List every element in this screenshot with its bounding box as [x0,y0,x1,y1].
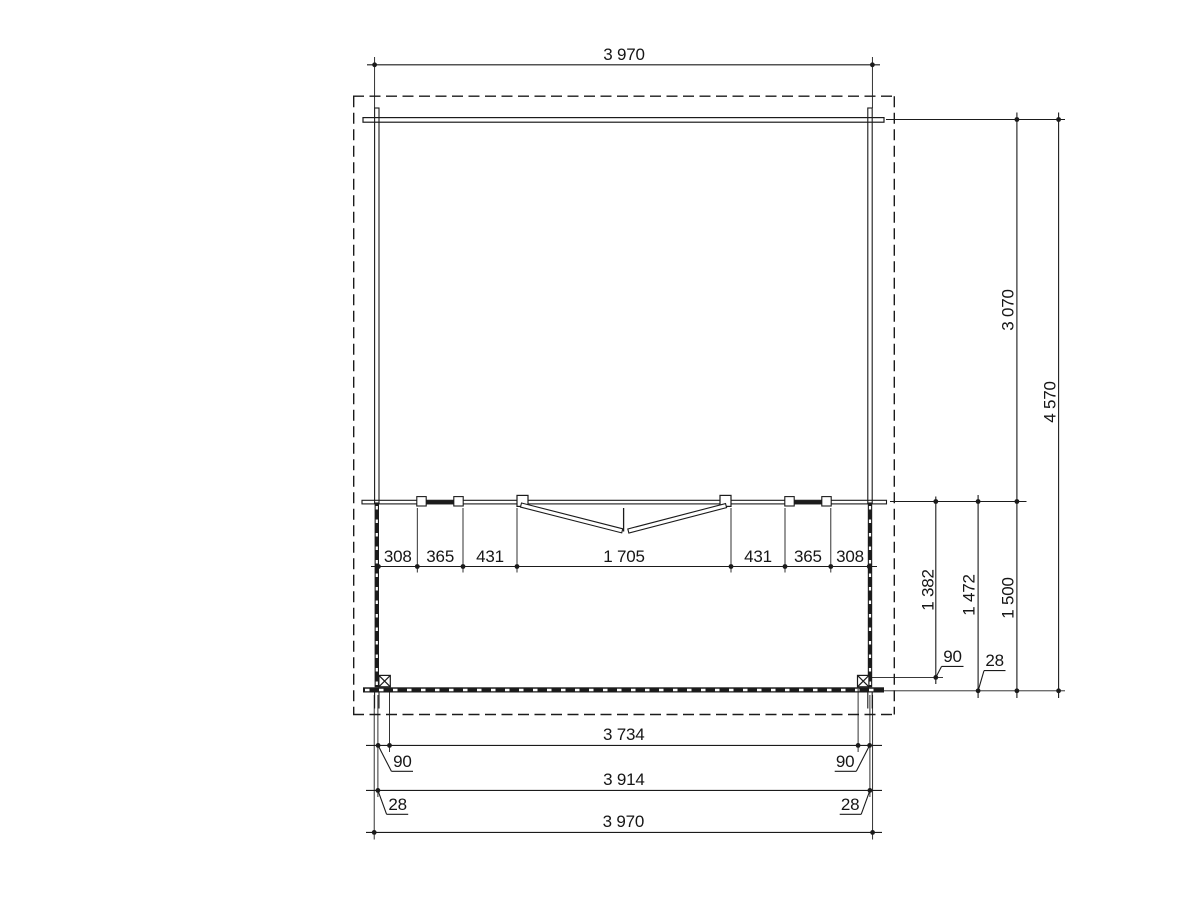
dim-label-1472: 1 472 [960,574,977,616]
window-left-sash [426,501,454,504]
dim-label-chain-308-left: 308 [384,548,412,565]
dim-label-1382: 1 382 [920,569,937,611]
leader-right-90 [936,666,964,677]
back-wall-beam [363,118,884,123]
roof-overhang-outline [353,96,895,714]
door-leaf-left [520,503,622,533]
leader-right-28 [978,671,1005,691]
dim-label-right-28: 28 [985,652,1004,669]
dim-label-right-90: 90 [943,648,962,665]
terrace-front-beam [363,687,884,692]
floor-plan-canvas: 3 970 308 365 431 1 705 431 365 308 3 07… [0,0,1200,900]
dim-label-chain-308-right: 308 [836,548,864,565]
dim-label-chain-431-left: 431 [476,548,504,565]
dim-label-bottom-90-left: 90 [393,753,412,770]
side-wall-left [375,108,379,503]
dim-label-bottom-28-left: 28 [388,796,407,813]
dim-label-3914: 3 914 [603,771,645,788]
window-right [785,497,831,506]
window-right-sash [794,501,822,504]
door-leaf-right [628,504,727,534]
corner-post-right [858,675,869,686]
dim-top-overall [367,57,880,108]
dim-label-chain-1705: 1 705 [603,548,645,565]
side-wall-right [868,108,872,503]
dim-label-3734: 3 734 [603,726,645,743]
dim-label-chain-365-left: 365 [426,548,454,565]
dim-label-3070: 3 070 [1000,289,1017,331]
window-left [417,497,463,506]
double-door [517,495,731,533]
dim-label-1500: 1 500 [999,577,1016,619]
dim-label-bottom-90-right: 90 [836,753,855,770]
dim-label-overall-width-bottom: 3 970 [603,813,645,830]
dim-label-bottom-28-right: 28 [841,796,860,813]
dim-label-4570: 4 570 [1041,381,1058,423]
dim-label-chain-431-right: 431 [744,548,772,565]
dim-label-overall-width-top: 3 970 [603,46,645,63]
window-right-post-a [785,497,794,506]
window-right-post-b [822,497,831,506]
floor-plan-linework [0,0,1200,900]
corner-post-left [379,675,390,686]
window-left-post-a [417,497,426,506]
dim-label-chain-365-right: 365 [794,548,822,565]
window-left-post-b [454,497,463,506]
